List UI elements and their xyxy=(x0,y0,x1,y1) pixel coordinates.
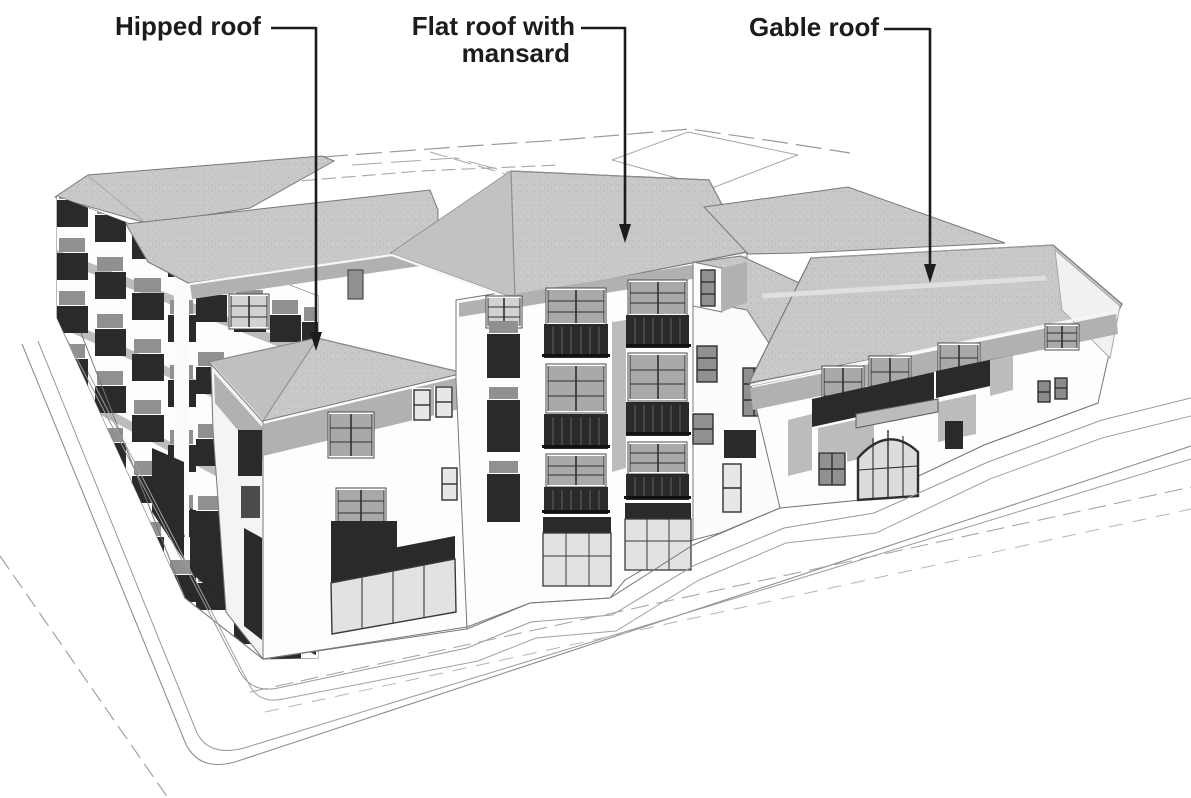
svg-text:Gable roof: Gable roof xyxy=(749,12,879,42)
svg-text:Hipped roof: Hipped roof xyxy=(115,11,261,41)
svg-text:mansard: mansard xyxy=(462,38,570,68)
svg-text:Flat roof with: Flat roof with xyxy=(412,11,575,41)
